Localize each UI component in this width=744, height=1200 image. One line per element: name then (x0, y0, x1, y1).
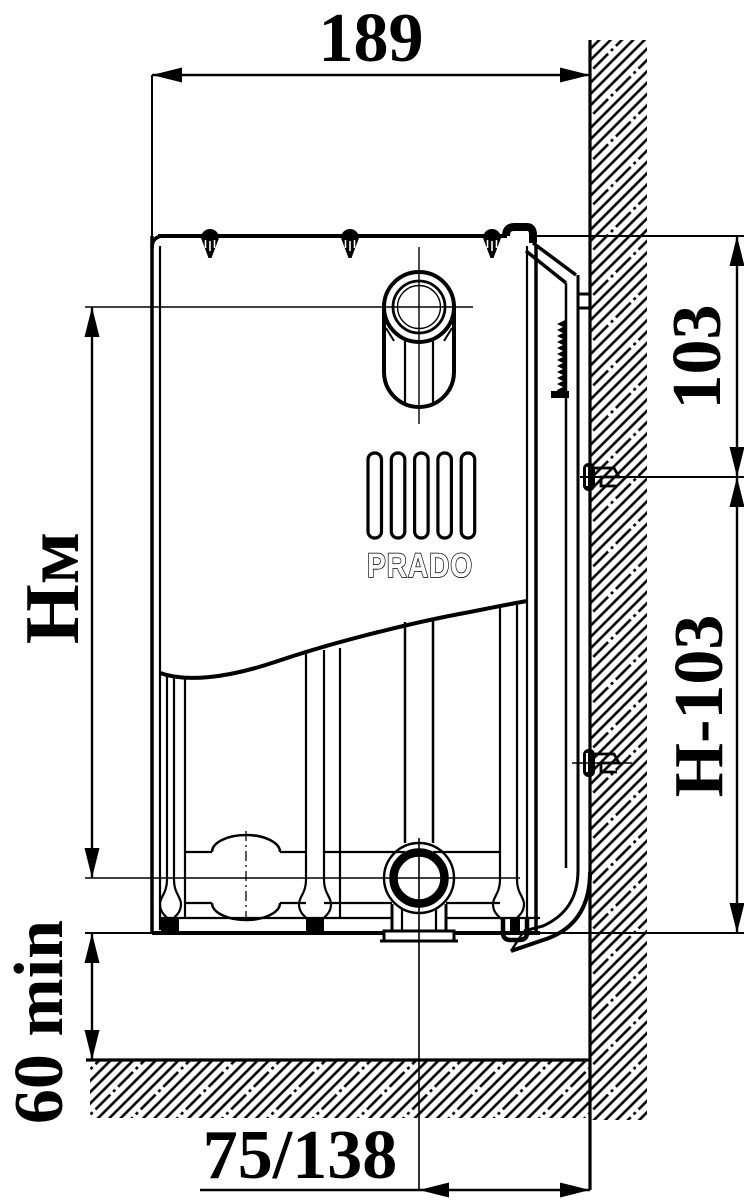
floor-section (86, 1060, 590, 1118)
dimension-mounting-height-hm: Нм (9, 307, 520, 878)
arrowhead-icon (730, 477, 744, 507)
logo-slot (415, 453, 429, 538)
vent-slot-icon (483, 229, 501, 258)
mounting-bracket (506, 227, 590, 951)
foot-block (161, 919, 179, 933)
arrowhead-icon (730, 447, 744, 477)
bracket-wall-tab (578, 294, 590, 308)
bracket-diagonal (533, 243, 576, 275)
channel-funnel (160, 880, 181, 919)
drawing-canvas: PRADO (0, 0, 744, 1200)
dimension-label-103: 103 (659, 305, 736, 410)
arrowhead-icon (730, 903, 744, 933)
arrowhead-icon (85, 307, 100, 337)
channel-funnel (299, 880, 331, 919)
bracket-tooth-rack (557, 320, 565, 394)
dimension-label-60min: 60 min (1, 920, 78, 1124)
top-port (384, 247, 454, 424)
convector-core (152, 605, 540, 940)
logo-slot (438, 453, 452, 538)
arrowhead-icon (152, 68, 182, 83)
arrowhead-icon (85, 1030, 100, 1060)
back-panel (527, 246, 536, 933)
foot-block (510, 919, 520, 932)
arrowhead-icon (85, 933, 100, 963)
brand-logo-text: PRADO (367, 547, 473, 585)
dimension-label-189: 189 (319, 0, 424, 77)
arrowhead-icon (730, 236, 744, 266)
logo-slot (368, 453, 382, 538)
prado-logo: PRADO (367, 453, 475, 585)
dimension-label-hm: Нм (9, 532, 95, 644)
arrowhead-icon (560, 1183, 590, 1198)
channel-funnel (493, 880, 524, 919)
vent-slot-icon (201, 229, 219, 258)
dimension-label-75-138: 75/138 (203, 1117, 397, 1194)
floor-hatch (90, 1060, 590, 1118)
panel-break-wave-line (160, 601, 527, 678)
foot-block (306, 919, 324, 933)
arrowhead-icon (560, 68, 590, 83)
vent-slot-icon (341, 229, 359, 258)
logo-slot (461, 453, 475, 538)
dimension-width-189: 189 (152, 0, 590, 236)
logo-slot (391, 453, 405, 538)
radiator-installation-drawing: PRADO (0, 0, 744, 1200)
wall-hatch (590, 40, 647, 1120)
radiator-body: PRADO (152, 227, 632, 951)
bracket-top-hook (506, 227, 533, 243)
arrowhead-icon (419, 1183, 449, 1198)
arrowhead-icon (85, 848, 100, 878)
bracket-lower-hook-inner (524, 870, 578, 931)
rack-foot-bar (551, 391, 569, 398)
wall-section (590, 40, 647, 1190)
bracket-diagonal (526, 251, 566, 283)
dimension-label-h103: H-103 (661, 615, 738, 798)
